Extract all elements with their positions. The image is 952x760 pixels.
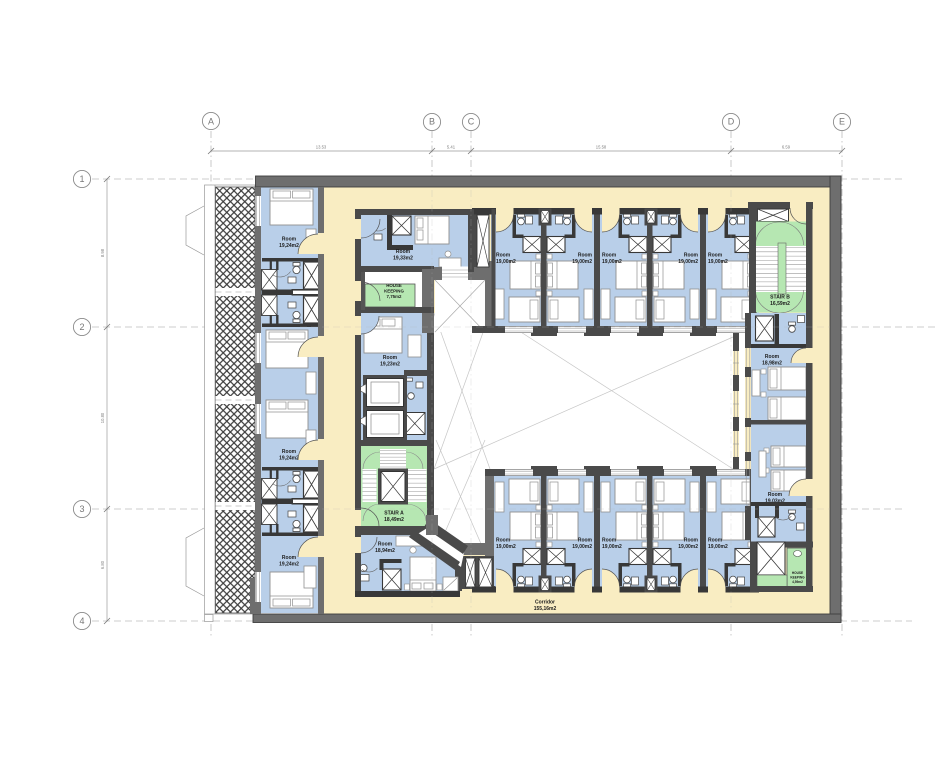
svg-text:8.98: 8.98 xyxy=(100,248,105,257)
svg-text:D: D xyxy=(728,117,735,127)
svg-text:19,00m2: 19,00m2 xyxy=(708,544,728,550)
svg-text:KEEPING: KEEPING xyxy=(790,575,805,579)
svg-text:155,16m2: 155,16m2 xyxy=(534,606,557,612)
svg-text:Room: Room xyxy=(282,237,297,243)
svg-text:Room: Room xyxy=(496,253,511,259)
svg-text:13.53: 13.53 xyxy=(316,145,327,150)
svg-text:STAIR A: STAIR A xyxy=(384,511,404,517)
svg-text:Room: Room xyxy=(496,538,511,544)
svg-text:19,24m2: 19,24m2 xyxy=(279,456,299,462)
svg-text:A: A xyxy=(208,117,214,127)
svg-text:6.59: 6.59 xyxy=(782,145,791,150)
svg-text:HOUSE: HOUSE xyxy=(792,571,803,575)
svg-text:19,00m2: 19,00m2 xyxy=(602,544,622,550)
svg-text:Room: Room xyxy=(578,538,593,544)
svg-text:10.80: 10.80 xyxy=(100,412,105,423)
svg-text:1: 1 xyxy=(79,174,84,184)
svg-text:Room: Room xyxy=(602,538,617,544)
svg-text:Room: Room xyxy=(684,253,699,259)
svg-text:4,59m2: 4,59m2 xyxy=(792,580,803,584)
svg-text:19,00m2: 19,00m2 xyxy=(572,259,592,265)
svg-text:STAIR B: STAIR B xyxy=(770,295,790,301)
svg-text:7,75m2: 7,75m2 xyxy=(387,294,402,299)
svg-text:19,00m2: 19,00m2 xyxy=(708,259,728,265)
svg-text:HOUSE: HOUSE xyxy=(386,283,402,288)
svg-text:3: 3 xyxy=(79,504,84,514)
svg-text:19,00m2: 19,00m2 xyxy=(602,259,622,265)
svg-text:Room: Room xyxy=(684,538,699,544)
svg-text:19,00m2: 19,00m2 xyxy=(678,544,698,550)
svg-text:Room: Room xyxy=(378,542,393,548)
svg-text:2: 2 xyxy=(79,322,84,332)
svg-text:16,59m2: 16,59m2 xyxy=(770,301,790,307)
svg-text:18,94m2: 18,94m2 xyxy=(375,548,395,554)
svg-text:19,00m2: 19,00m2 xyxy=(572,544,592,550)
svg-text:18,98m2: 18,98m2 xyxy=(762,361,782,367)
svg-text:19,24m2: 19,24m2 xyxy=(279,562,299,568)
svg-text:Room: Room xyxy=(768,492,783,498)
svg-text:4: 4 xyxy=(79,616,84,626)
svg-text:19,23m2: 19,23m2 xyxy=(380,362,400,368)
svg-text:19,24m2: 19,24m2 xyxy=(279,243,299,249)
svg-text:Room: Room xyxy=(708,253,723,259)
svg-text:Room: Room xyxy=(578,253,593,259)
svg-text:KEEPING: KEEPING xyxy=(384,289,404,294)
svg-text:5.41: 5.41 xyxy=(447,145,456,150)
svg-text:19,00m2: 19,00m2 xyxy=(678,259,698,265)
svg-text:B: B xyxy=(429,117,435,127)
svg-text:Room: Room xyxy=(602,253,617,259)
svg-text:Room: Room xyxy=(383,355,398,361)
svg-text:18,49m2: 18,49m2 xyxy=(384,517,404,523)
svg-text:Room: Room xyxy=(708,538,723,544)
svg-text:6.80: 6.80 xyxy=(100,560,105,569)
svg-text:C: C xyxy=(468,117,475,127)
svg-text:Room: Room xyxy=(396,249,411,255)
svg-text:E: E xyxy=(839,117,845,127)
svg-text:19,33m2: 19,33m2 xyxy=(393,256,413,262)
svg-text:15.58: 15.58 xyxy=(596,145,607,150)
svg-text:19,00m2: 19,00m2 xyxy=(496,259,516,265)
svg-text:Room: Room xyxy=(282,555,297,561)
svg-text:Room: Room xyxy=(765,354,780,360)
svg-text:Corridor: Corridor xyxy=(535,600,555,606)
svg-text:Room: Room xyxy=(282,449,297,455)
svg-text:19,00m2: 19,00m2 xyxy=(496,544,516,550)
